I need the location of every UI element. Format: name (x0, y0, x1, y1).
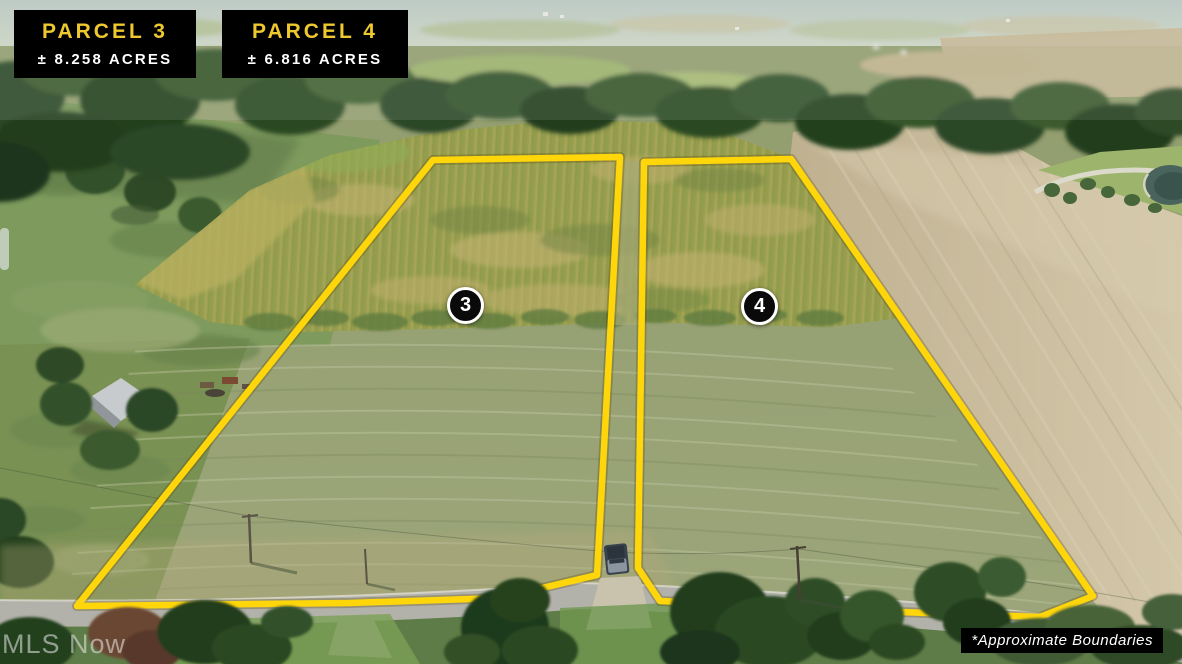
aerial-parcel-photo: PARCEL 3 ± 8.258 ACRES PARCEL 4 ± 6.816 … (0, 0, 1182, 664)
parcel-4-acreage: ± 6.816 ACRES (248, 51, 383, 68)
mls-watermark: MLS Now (2, 629, 126, 660)
parcel-4-label-box: PARCEL 4 ± 6.816 ACRES (222, 10, 408, 78)
parcel-3-name: PARCEL 3 (42, 20, 168, 44)
parcel-3-acreage: ± 8.258 ACRES (38, 51, 173, 68)
parcel-3-label-box: PARCEL 3 ± 8.258 ACRES (14, 10, 196, 78)
parcel-3-badge: 3 (447, 287, 484, 324)
aerial-photo-scene (0, 0, 1182, 664)
pickup-truck (604, 543, 630, 575)
parcel-4-badge: 4 (741, 288, 778, 325)
approximate-boundaries-note: *Approximate Boundaries (961, 628, 1163, 653)
stream-glimpse (0, 228, 9, 270)
parcel-4-name: PARCEL 4 (252, 20, 378, 44)
